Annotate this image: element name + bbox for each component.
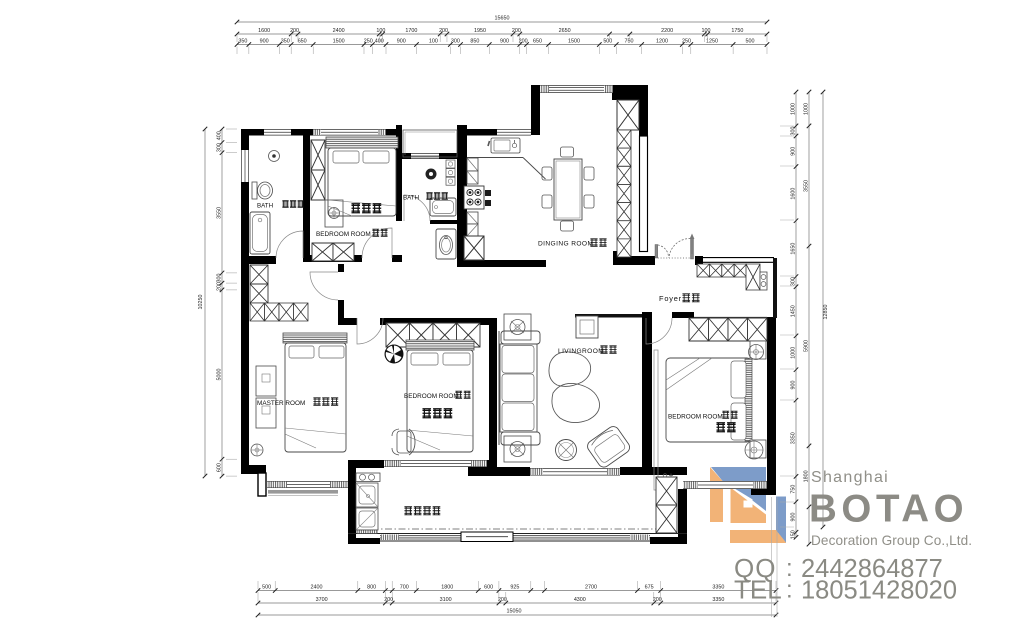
- svg-text:300: 300: [451, 39, 460, 45]
- svg-text:300: 300: [216, 274, 222, 283]
- svg-text:1450: 1450: [790, 305, 796, 317]
- svg-text:400: 400: [216, 131, 222, 140]
- svg-text:Shanghai: Shanghai: [811, 469, 889, 486]
- svg-text:250: 250: [682, 39, 691, 45]
- svg-text:3100: 3100: [440, 597, 452, 603]
- svg-text:200: 200: [512, 28, 521, 34]
- svg-text:2200: 2200: [661, 28, 673, 34]
- svg-text:675: 675: [645, 585, 654, 591]
- svg-text:5900: 5900: [803, 340, 809, 352]
- svg-text:500: 500: [603, 39, 612, 45]
- svg-text:10250: 10250: [198, 295, 204, 310]
- svg-text:900: 900: [500, 39, 509, 45]
- svg-text:100: 100: [702, 28, 711, 34]
- svg-text:3700: 3700: [316, 597, 328, 603]
- svg-text:300: 300: [790, 277, 796, 286]
- svg-text:1200: 1200: [656, 39, 668, 45]
- svg-text:BEDROOM ROOM: BEDROOM ROOM: [668, 414, 723, 421]
- svg-text:100: 100: [429, 39, 438, 45]
- svg-text:650: 650: [533, 39, 542, 45]
- svg-text:MASTER ROOM: MASTER ROOM: [257, 400, 305, 407]
- svg-text:4300: 4300: [574, 597, 586, 603]
- svg-text:3350: 3350: [712, 597, 724, 603]
- svg-text:1500: 1500: [568, 39, 580, 45]
- svg-text:1500: 1500: [333, 39, 345, 45]
- svg-text:200: 200: [653, 597, 662, 603]
- svg-text:900: 900: [397, 39, 406, 45]
- svg-text:650: 650: [298, 39, 307, 45]
- svg-text:925: 925: [510, 585, 519, 591]
- svg-text:200: 200: [384, 597, 393, 603]
- svg-text:500: 500: [746, 39, 755, 45]
- svg-text:1950: 1950: [474, 28, 486, 34]
- svg-text:900: 900: [260, 39, 269, 45]
- svg-text:BATH: BATH: [257, 203, 273, 210]
- svg-text:600: 600: [484, 585, 493, 591]
- svg-text:BEDROOM ROOM: BEDROOM ROOM: [404, 393, 459, 400]
- svg-text:1000: 1000: [790, 103, 796, 115]
- svg-text:3350: 3350: [790, 432, 796, 444]
- svg-text:2400: 2400: [311, 585, 323, 591]
- svg-text:750: 750: [790, 485, 796, 494]
- svg-text:1700: 1700: [405, 28, 417, 34]
- svg-text:500: 500: [262, 585, 271, 591]
- svg-text:750: 750: [624, 39, 633, 45]
- svg-text:200: 200: [498, 597, 507, 603]
- svg-text:200: 200: [290, 28, 299, 34]
- svg-text:12850: 12850: [823, 305, 829, 320]
- svg-text:LIVINGROOM: LIVINGROOM: [558, 348, 604, 355]
- svg-text:1800: 1800: [803, 470, 809, 482]
- svg-text:Decoration Group Co.,Ltd.: Decoration Group Co.,Ltd.: [811, 533, 972, 548]
- svg-text:1600: 1600: [258, 28, 270, 34]
- svg-text:100: 100: [376, 28, 385, 34]
- svg-text:1800: 1800: [441, 585, 453, 591]
- svg-text:1650: 1650: [790, 243, 796, 255]
- svg-text:15650: 15650: [495, 16, 510, 22]
- svg-text:150: 150: [790, 530, 796, 539]
- svg-text:BATH: BATH: [403, 195, 419, 202]
- svg-text::: :: [786, 577, 793, 604]
- svg-text:900: 900: [790, 380, 796, 389]
- svg-text:BOTAO: BOTAO: [809, 488, 968, 531]
- svg-text:1000: 1000: [790, 347, 796, 359]
- svg-text:700: 700: [400, 585, 409, 591]
- svg-text:1000: 1000: [803, 103, 809, 115]
- svg-text:350: 350: [238, 39, 247, 45]
- svg-text:2700: 2700: [585, 585, 597, 591]
- svg-text:900: 900: [790, 513, 796, 522]
- svg-text:18051428020: 18051428020: [801, 577, 957, 605]
- svg-text:15050: 15050: [507, 609, 522, 615]
- svg-text:3550: 3550: [803, 180, 809, 192]
- svg-text:900: 900: [790, 147, 796, 156]
- svg-text:1750: 1750: [731, 28, 743, 34]
- svg-text:2650: 2650: [559, 28, 571, 34]
- svg-text:2400: 2400: [333, 28, 345, 34]
- svg-text:DINGING ROOM: DINGING ROOM: [538, 241, 593, 248]
- svg-text:200: 200: [439, 28, 448, 34]
- svg-text:350: 350: [281, 39, 290, 45]
- svg-text:850: 850: [470, 39, 479, 45]
- svg-text:600: 600: [216, 463, 222, 472]
- svg-text:300: 300: [216, 143, 222, 152]
- svg-text:BEDROOM ROOM: BEDROOM ROOM: [316, 231, 371, 238]
- svg-text:TEL: TEL: [734, 575, 782, 605]
- svg-text:3550: 3550: [216, 207, 222, 219]
- svg-text:250: 250: [364, 39, 373, 45]
- svg-text:200: 200: [216, 282, 222, 291]
- svg-text:5000: 5000: [216, 369, 222, 381]
- svg-text:800: 800: [367, 585, 376, 591]
- svg-text:Foyer: Foyer: [659, 294, 682, 303]
- svg-text:1600: 1600: [790, 188, 796, 200]
- svg-text:3350: 3350: [712, 585, 724, 591]
- svg-text:300: 300: [790, 126, 796, 135]
